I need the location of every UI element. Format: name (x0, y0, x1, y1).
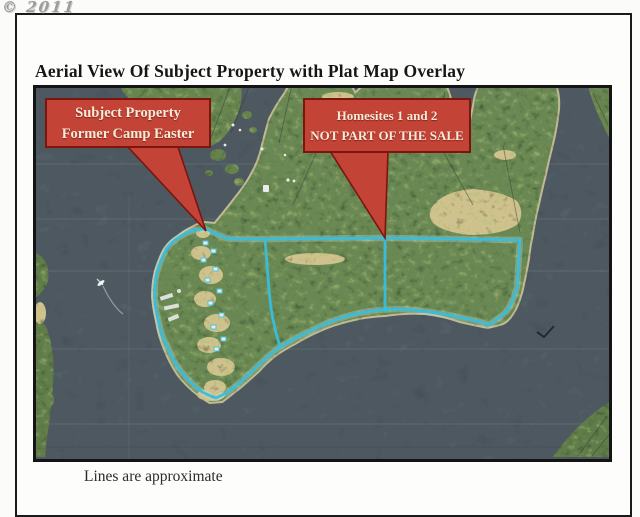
callout-homesites-line1: Homesites 1 and 2 (305, 106, 469, 126)
copyright-watermark: © 2011 (1, 0, 77, 16)
photo-caption: Lines are approximate (84, 468, 223, 486)
page-title: Aerial View Of Subject Property with Pla… (35, 61, 465, 82)
callout-subject-line2: Former Camp Easter (47, 124, 209, 145)
callout-subject-line1: Subject Property (47, 103, 209, 124)
callout-homesites-line2: NOT PART OF THE SALE (305, 126, 469, 146)
callout-subject-property: Subject Property Former Camp Easter (45, 98, 211, 148)
callout-homesites: Homesites 1 and 2 NOT PART OF THE SALE (303, 98, 471, 153)
